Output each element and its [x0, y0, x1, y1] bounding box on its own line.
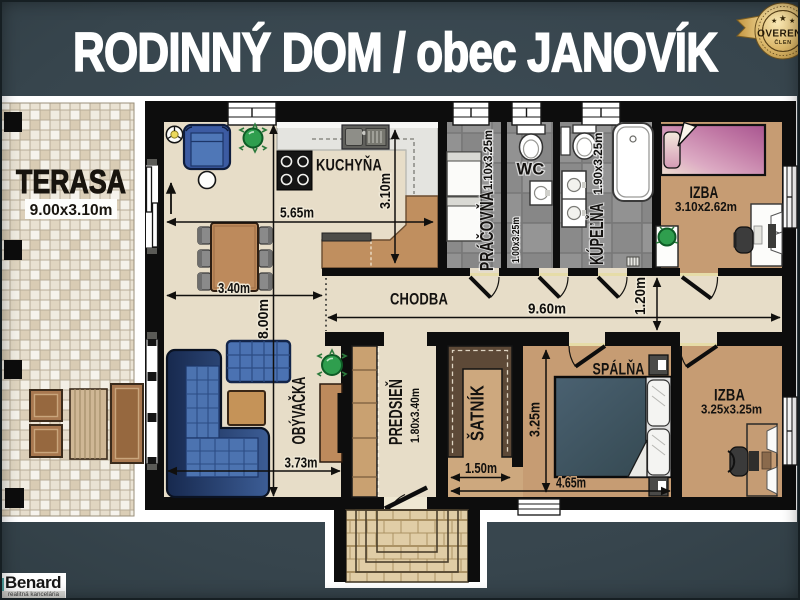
- svg-text:ŠATNÍK: ŠATNÍK: [467, 385, 488, 441]
- svg-text:1.50m: 1.50m: [465, 461, 497, 477]
- svg-text:CHODBA: CHODBA: [390, 291, 448, 309]
- svg-text:PREDSIEŇ: PREDSIEŇ: [385, 379, 406, 445]
- svg-text:TERASA: TERASA: [16, 163, 126, 200]
- svg-text:3.40m: 3.40m: [218, 281, 250, 297]
- svg-text:3.25m: 3.25m: [528, 402, 544, 437]
- svg-text:KUCHYŇA: KUCHYŇA: [316, 156, 382, 175]
- svg-text:WC: WC: [517, 161, 545, 179]
- svg-text:3.25x3.25m: 3.25x3.25m: [701, 402, 762, 417]
- svg-text:OBÝVAČKA: OBÝVAČKA: [288, 377, 309, 445]
- svg-text:ČLEN: ČLEN: [774, 39, 791, 46]
- svg-text:3.10x2.62m: 3.10x2.62m: [675, 199, 737, 214]
- svg-text:3.10m: 3.10m: [378, 173, 394, 209]
- svg-text:PRÁČOVŇA: PRÁČOVŇA: [476, 191, 497, 271]
- svg-text:1.90x3.25m: 1.90x3.25m: [591, 133, 605, 195]
- svg-text:★: ★: [771, 17, 777, 25]
- svg-text:9.00x3.10m: 9.00x3.10m: [30, 202, 113, 219]
- svg-text:1.00x3.25m: 1.00x3.25m: [510, 217, 522, 263]
- svg-text:SPÁLŇA: SPÁLŇA: [593, 360, 645, 379]
- svg-text:9.60m: 9.60m: [528, 302, 566, 318]
- svg-text:OVERENÝ: OVERENÝ: [757, 27, 800, 40]
- svg-text:3.73m: 3.73m: [285, 456, 318, 472]
- svg-text:5.65m: 5.65m: [280, 206, 314, 222]
- svg-text:★: ★: [789, 17, 795, 25]
- svg-text:4.65m: 4.65m: [556, 476, 586, 492]
- svg-text:8.00m: 8.00m: [256, 299, 272, 339]
- svg-text:1.10x3.25m: 1.10x3.25m: [481, 130, 495, 190]
- svg-text:★: ★: [779, 13, 787, 23]
- svg-text:1.80x3.40m: 1.80x3.40m: [408, 388, 422, 443]
- svg-text:1.20m: 1.20m: [633, 277, 649, 315]
- svg-text:KÚPEĽŇA: KÚPEĽŇA: [586, 203, 607, 265]
